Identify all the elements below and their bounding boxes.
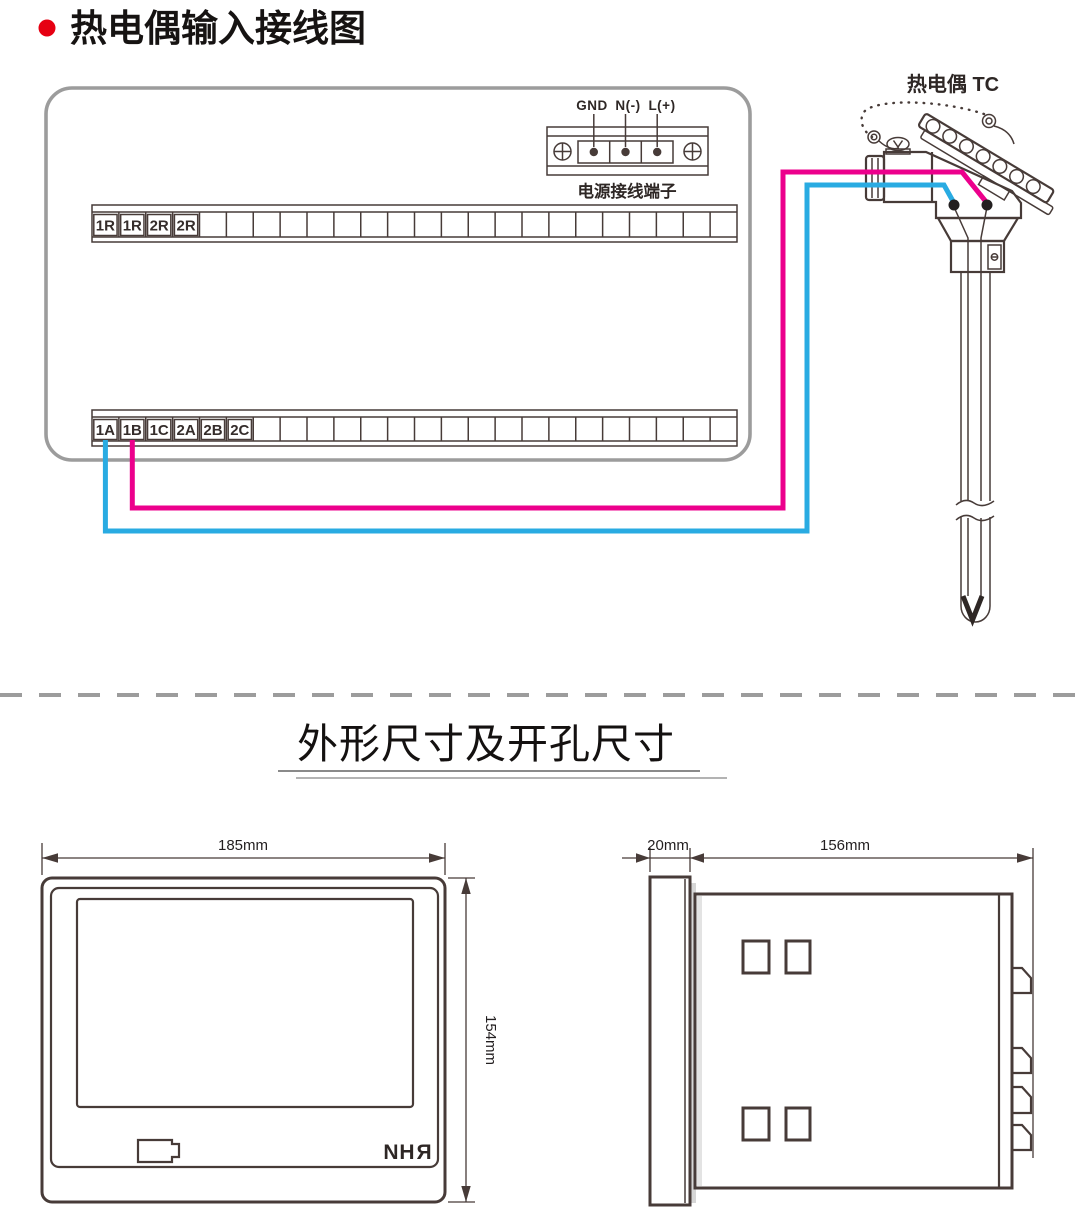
bullet-icon [39, 20, 56, 37]
mounting-slot [743, 1108, 769, 1140]
arrow-up-icon [461, 878, 470, 894]
wire-positive [132, 172, 987, 508]
head-screw-icon [868, 131, 899, 149]
mounting-slot [786, 941, 810, 973]
terminal-label: 2R [150, 218, 169, 235]
top-terminal-strip: 1R 1R 2R 2R [92, 205, 737, 242]
manual-page: 热电偶输入接线图 [0, 0, 1080, 1229]
arrow-right-icon [1017, 853, 1033, 862]
brand-logo: N H R [383, 1141, 431, 1164]
front-screen [77, 899, 413, 1107]
body-depth-dimension: 156mm [690, 837, 1033, 1158]
front-height-dimension: 154mm [448, 878, 499, 1202]
front-width-label: 185mm [218, 837, 268, 854]
terminal-label: 1C [150, 422, 169, 439]
side-body [695, 894, 1012, 1188]
internal-conductor [981, 207, 987, 502]
screw-icon [684, 143, 701, 160]
power-terminal-block: GND N(-) L(+) 电源接线端子 [547, 98, 708, 201]
terminal-label: 2R [177, 218, 196, 235]
side-view: 20mm 156mm [622, 837, 1033, 1205]
bezel-depth-label: 20mm [647, 837, 689, 854]
protection-tube [961, 272, 990, 622]
page-title: 热电偶输入接线图 [70, 8, 366, 49]
screw-icon [554, 143, 571, 160]
terminal-label: 1A [96, 422, 115, 439]
logo-letter-n: N [383, 1141, 398, 1164]
dimensions-section: 外形尺寸及开孔尺寸 N H R 185mm [42, 721, 1033, 1205]
bottom-terminal-strip: 1A 1B 1C 2A 2B 2C [92, 410, 737, 446]
logo-letter-h: H [399, 1141, 414, 1164]
mounting-slot [743, 941, 769, 973]
front-width-dimension: 185mm [42, 837, 445, 875]
terminal-label: 1R [123, 218, 142, 235]
bezel-depth-dimension: 20mm [622, 837, 704, 872]
terminal-dot [621, 148, 629, 156]
wire-terminal-dot [949, 200, 960, 211]
usb-slot-icon [138, 1140, 179, 1162]
hex-fitting [866, 156, 884, 200]
head-cone [938, 218, 1018, 241]
arrow-right-icon [429, 853, 445, 862]
mounting-slot [786, 1108, 810, 1140]
power-label-l: L(+) [648, 98, 675, 113]
rear-clip [1012, 1087, 1031, 1113]
front-view: N H R 185mm 154mm [42, 837, 499, 1202]
rear-clip [1012, 968, 1031, 993]
section-title: 外形尺寸及开孔尺寸 [297, 721, 675, 767]
power-label-gnd: GND [576, 98, 608, 113]
terminal-label: 2A [177, 422, 196, 439]
thermocouple: 热电偶 TC [862, 72, 1062, 622]
body-depth-label: 156mm [820, 837, 870, 854]
recorder-panel: GND N(-) L(+) 电源接线端子 1R 1R 2R 2R 1A 1B 1… [46, 88, 750, 460]
arrow-down-icon [461, 1186, 470, 1202]
cap-screw-icon [983, 115, 1015, 145]
junction-v-mark [963, 596, 982, 620]
front-bezel [51, 888, 438, 1167]
body-shadow [697, 896, 702, 1186]
power-label-n: N(-) [615, 98, 640, 113]
rear-clip [1012, 1048, 1031, 1073]
logo-letter-r: R [416, 1141, 431, 1164]
arrow-left-icon [42, 853, 58, 862]
terminal-dot [590, 148, 598, 156]
wire-terminal-dot [982, 200, 993, 211]
rear-clip [1012, 1125, 1031, 1150]
side-bezel [650, 877, 690, 1205]
terminal-dot [653, 148, 661, 156]
front-height-label: 154mm [482, 1015, 499, 1065]
thermocouple-label: 热电偶 TC [907, 72, 999, 96]
terminal-label: 1B [123, 422, 142, 439]
terminal-label: 2C [230, 422, 249, 439]
internal-conductor [968, 518, 981, 596]
terminal-label: 1R [96, 218, 115, 235]
arrow-right-icon [636, 853, 650, 862]
power-caption: 电源接线端子 [578, 181, 678, 201]
terminal-label: 2B [203, 422, 222, 439]
page-header: 热电偶输入接线图 [39, 8, 367, 49]
panel-outline [46, 88, 750, 460]
